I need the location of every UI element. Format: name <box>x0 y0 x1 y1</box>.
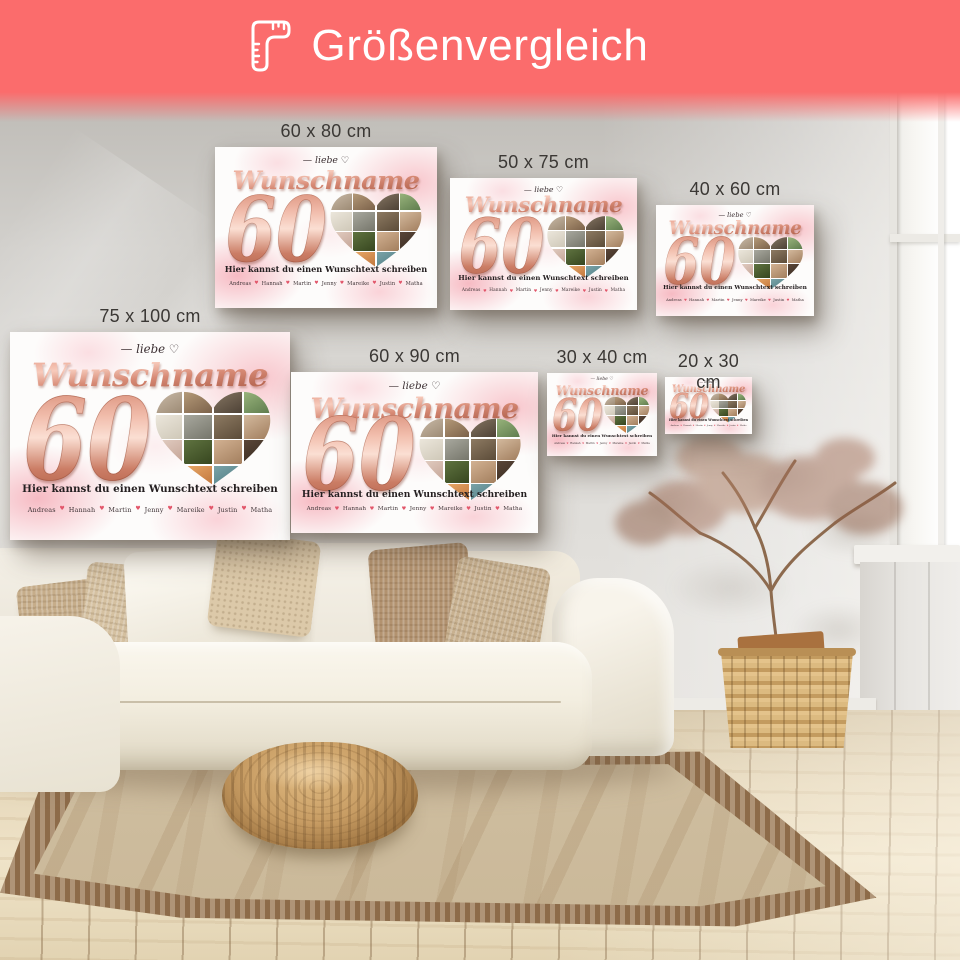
collage-photo <box>754 250 770 264</box>
poster-number-text: 60 <box>23 384 152 497</box>
poster-size-label: 20 x 30 cm <box>665 351 752 393</box>
poster-overline: — liebe ♡ <box>215 155 437 166</box>
wish-name: Hannah <box>689 298 704 302</box>
collage-photo <box>728 409 737 416</box>
poster-overline: — liebe ♡ <box>10 342 290 356</box>
collage-photo <box>719 409 728 416</box>
collage-photo <box>353 232 375 251</box>
header-banner: Größenvergleich <box>0 0 960 122</box>
poster-subtext: Hier kannst du einen Wunschtext schreibe… <box>215 264 437 274</box>
collage-photo <box>754 264 770 278</box>
heart-separator-icon: ♥ <box>583 288 587 293</box>
heart-separator-icon: ♥ <box>745 298 748 302</box>
wish-name: Andreas <box>28 506 56 514</box>
collage-photo <box>377 232 399 251</box>
poster-size-label: 50 x 75 cm <box>450 152 637 173</box>
page-title: Größenvergleich <box>311 21 648 71</box>
heart-separator-icon: ♥ <box>209 506 214 514</box>
collage-photo <box>418 439 443 460</box>
poster-number-text: 60 <box>552 394 603 438</box>
poster-artwork: — liebe ♡ Wunschname 60 Hier kannst du e… <box>291 372 538 533</box>
collage-photo <box>214 440 242 464</box>
heart-separator-icon: ♥ <box>596 442 598 445</box>
pillow-patterned <box>207 530 322 638</box>
poster-artwork: — liebe ♡ Wunschname 60 Hier kannst du e… <box>215 147 437 308</box>
collage-photo <box>184 415 212 439</box>
collage-photo <box>214 415 242 439</box>
wish-name: Andreas <box>666 298 682 302</box>
heart-separator-icon: ♥ <box>604 288 608 293</box>
wish-name: Andreas <box>307 506 332 512</box>
poster-number: 60 <box>553 395 603 437</box>
poster-subtext: Hier kannst du einen Wunschtext schreibe… <box>450 274 637 282</box>
wish-name: Mareike <box>717 425 726 427</box>
wish-name: Jenny <box>600 442 607 445</box>
collage-photo <box>586 231 605 247</box>
poster-number: 60 <box>24 388 150 492</box>
collage-photo <box>728 401 737 408</box>
collage-photo <box>606 249 625 265</box>
poster-names-row: Andreas♥Hannah♥Martin♥Jenny♥Mareike♥Just… <box>10 506 290 514</box>
collage-photo <box>445 461 470 482</box>
heart-photo-collage <box>546 214 625 281</box>
collage-photo <box>471 461 496 482</box>
heart-separator-icon: ♥ <box>135 506 140 514</box>
heart-separator-icon: ♥ <box>254 281 258 287</box>
heart-photo-collage <box>604 396 650 436</box>
heart-separator-icon: ♥ <box>609 442 611 445</box>
heart-separator-icon: ♥ <box>241 506 246 514</box>
poster-artwork: — liebe ♡ Wunschname 60 Hier kannst du e… <box>547 373 657 456</box>
wish-name: Justin <box>629 442 637 445</box>
heart-separator-icon: ♥ <box>402 506 407 512</box>
heart-separator-icon: ♥ <box>567 442 569 445</box>
collage-photo <box>566 231 585 247</box>
wish-name: Justin <box>589 288 602 293</box>
poster-number: 60 <box>664 235 735 291</box>
poster-number: 60 <box>226 190 326 271</box>
collage-photo <box>353 212 375 231</box>
poster-size-label: 60 x 90 cm <box>291 346 538 367</box>
collage-photo <box>615 416 626 425</box>
collage-photo <box>400 232 422 251</box>
wish-name: Martin <box>586 442 595 445</box>
collage-photo <box>604 416 615 425</box>
wish-name: Hannah <box>69 506 96 514</box>
collage-photo <box>788 250 804 264</box>
collage-photo <box>710 409 719 416</box>
wish-name: Matha <box>406 281 423 287</box>
heart-separator-icon: ♥ <box>625 442 627 445</box>
wish-name: Justin <box>380 281 396 287</box>
poster-subtext: Hier kannst du einen Wunschtext schreibe… <box>291 489 538 500</box>
collage-photo <box>244 440 272 464</box>
collage-photo <box>719 401 728 408</box>
wish-name: Matha <box>503 506 522 512</box>
poster-number-text: 60 <box>225 186 327 275</box>
heart-separator-icon: ♥ <box>372 281 376 287</box>
collage-photo <box>586 249 605 265</box>
heart-separator-icon: ♥ <box>510 288 514 293</box>
wish-name: Martin <box>712 298 725 302</box>
poster-names-row: Andreas♥Hannah♥Martin♥Jenny♥Mareike♥Just… <box>547 442 657 445</box>
heart-separator-icon: ♥ <box>787 298 790 302</box>
collage-photo <box>771 264 787 278</box>
wish-name: Jenny <box>410 506 427 512</box>
collage-photo <box>639 416 650 425</box>
wish-name: Hannah <box>343 506 366 512</box>
wish-name: Mareike <box>612 442 623 445</box>
wish-name: Hannah <box>262 281 283 287</box>
wish-name: Martin <box>696 425 703 427</box>
wish-name: Hannah <box>683 425 691 427</box>
wish-name: Matha <box>251 506 273 514</box>
wish-name: Andreas <box>462 288 481 293</box>
heart-separator-icon: ♥ <box>727 298 730 302</box>
heart-photo-collage <box>329 191 422 271</box>
heart-separator-icon: ♥ <box>466 506 471 512</box>
wish-name: Jenny <box>145 506 164 514</box>
heart-separator-icon: ♥ <box>680 425 682 427</box>
wish-name: Jenny <box>732 298 743 302</box>
poster-size-label: 60 x 80 cm <box>215 121 437 142</box>
collage-photo <box>418 461 443 482</box>
wish-name: Justin <box>773 298 784 302</box>
heart-separator-icon: ♥ <box>582 442 584 445</box>
collage-photo <box>615 406 626 415</box>
collage-photo <box>329 212 351 231</box>
collage-photo <box>627 416 638 425</box>
poster-number: 60 <box>669 392 708 421</box>
heart-separator-icon: ♥ <box>638 442 640 445</box>
poster-canvas: — liebe ♡ Wunschname 60 Hier kannst du e… <box>10 332 290 540</box>
collage-photo <box>737 264 753 278</box>
poster-names-row: Andreas♥Hannah♥Martin♥Jenny♥Mareike♥Just… <box>450 288 637 293</box>
poster-overline: — liebe ♡ <box>547 377 657 382</box>
wish-name: Jenny <box>707 425 713 427</box>
collage-photo <box>738 401 747 408</box>
collage-photo <box>400 212 422 231</box>
collage-photo <box>244 415 272 439</box>
wish-name: Hannah <box>489 288 507 293</box>
poster-canvas: — liebe ♡ Wunschname 60 Hier kannst du e… <box>215 147 437 308</box>
heart-separator-icon: ♥ <box>398 281 402 287</box>
collage-photo <box>471 439 496 460</box>
poster-number: 60 <box>303 415 414 496</box>
collage-photo <box>377 212 399 231</box>
poster-names-row: Andreas♥Hannah♥Martin♥Jenny♥Mareike♥Just… <box>665 425 752 427</box>
poster-canvas: — liebe ♡ Wunschname 60 Hier kannst du e… <box>656 205 814 316</box>
collage-photo <box>546 231 565 247</box>
heart-separator-icon: ♥ <box>704 425 706 427</box>
poster-subtext: Hier kannst du einen Wunschtext schreibe… <box>547 433 657 438</box>
collage-photo <box>627 406 638 415</box>
poster-artwork: — liebe ♡ Wunschname 60 Hier kannst du e… <box>450 178 637 310</box>
header-content: Größenvergleich <box>0 0 930 92</box>
collage-photo <box>154 415 182 439</box>
poster-number: 60 <box>459 214 543 280</box>
collage-photo <box>546 249 565 265</box>
poster-size-label: 75 x 100 cm <box>10 306 290 327</box>
heart-separator-icon: ♥ <box>706 298 709 302</box>
heart-separator-icon: ♥ <box>495 506 500 512</box>
collage-photo <box>329 232 351 251</box>
ruler-icon <box>251 20 293 72</box>
wish-name: Justin <box>730 425 736 427</box>
wish-name: Jenny <box>540 288 553 293</box>
wish-name: Andreas <box>229 281 251 287</box>
heart-separator-icon: ♥ <box>693 425 695 427</box>
heart-separator-icon: ♥ <box>727 425 729 427</box>
poster-names-row: Andreas♥Hannah♥Martin♥Jenny♥Mareike♥Just… <box>291 506 538 512</box>
wish-name: Martin <box>108 506 131 514</box>
wish-name: Matha <box>641 442 649 445</box>
wish-name: Justin <box>218 506 238 514</box>
collage-photo <box>710 401 719 408</box>
collage-photo <box>566 249 585 265</box>
heart-separator-icon: ♥ <box>534 288 538 293</box>
wish-name: Martin <box>293 281 311 287</box>
wish-name: Martin <box>378 506 398 512</box>
wish-name: Jenny <box>322 281 337 287</box>
heart-separator-icon: ♥ <box>483 288 487 293</box>
wish-name: Andreas <box>671 425 680 427</box>
collage-photo <box>604 406 615 415</box>
heart-separator-icon: ♥ <box>340 281 344 287</box>
sofa-armrest-left <box>0 616 120 792</box>
collage-photo <box>497 439 522 460</box>
wish-name: Matha <box>740 425 747 427</box>
collage-photo <box>154 440 182 464</box>
poster-size-label: 40 x 60 cm <box>656 179 814 200</box>
poster-artwork: — liebe ♡ Wunschname 60 Hier kannst du e… <box>656 205 814 316</box>
collage-photo <box>738 409 747 416</box>
heart-separator-icon: ♥ <box>167 506 172 514</box>
poster-artwork: — liebe ♡ Wunschname 60 Hier kannst du e… <box>10 332 290 540</box>
wish-name: Mareike <box>438 506 463 512</box>
heart-separator-icon: ♥ <box>286 281 290 287</box>
collage-photo <box>639 406 650 415</box>
wish-name: Matha <box>611 288 625 293</box>
heart-separator-icon: ♥ <box>737 425 739 427</box>
heart-separator-icon: ♥ <box>555 288 559 293</box>
heart-separator-icon: ♥ <box>314 281 318 287</box>
heart-photo-collage <box>737 236 803 293</box>
collage-photo <box>737 250 753 264</box>
wish-name: Hannah <box>570 442 580 445</box>
wish-name: Mareike <box>561 288 580 293</box>
wish-name: Martin <box>516 288 531 293</box>
wish-name: Matha <box>792 298 804 302</box>
poster-names-row: Andreas♥Hannah♥Martin♥Jenny♥Mareike♥Just… <box>656 298 814 302</box>
heart-separator-icon: ♥ <box>684 298 687 302</box>
poster-subtext: Hier kannst du einen Wunschtext schreibe… <box>656 285 814 291</box>
heart-separator-icon: ♥ <box>714 425 716 427</box>
heart-separator-icon: ♥ <box>768 298 771 302</box>
wish-name: Justin <box>474 506 491 512</box>
poster-canvas: — liebe ♡ Wunschname 60 Hier kannst du e… <box>547 373 657 456</box>
wish-name: Mareike <box>177 506 205 514</box>
collage-photo <box>445 439 470 460</box>
poster-names-row: Andreas♥Hannah♥Martin♥Jenny♥Mareike♥Just… <box>215 281 437 287</box>
wish-name: Mareike <box>750 298 766 302</box>
collage-photo <box>788 264 804 278</box>
collage-photo <box>606 231 625 247</box>
heart-separator-icon: ♥ <box>335 506 340 512</box>
rattan-pouf <box>222 742 418 849</box>
poster-subtext: Hier kannst du einen Wunschtext schreibe… <box>665 418 752 422</box>
poster-canvas: — liebe ♡ Wunschname 60 Hier kannst du e… <box>450 178 637 310</box>
wish-name: Mareike <box>347 281 369 287</box>
collage-photo <box>497 461 522 482</box>
heart-separator-icon: ♥ <box>430 506 435 512</box>
heart-photo-collage <box>154 389 272 490</box>
poster-canvas: — liebe ♡ Wunschname 60 Hier kannst du e… <box>291 372 538 533</box>
heart-separator-icon: ♥ <box>370 506 375 512</box>
collage-photo <box>184 440 212 464</box>
poster-subtext: Hier kannst du einen Wunschtext schreibe… <box>10 483 290 495</box>
wish-name: Andreas <box>554 442 565 445</box>
size-comparison-scene: Größenvergleich — liebe ♡ Wunschname 60 … <box>0 0 960 960</box>
poster-size-label: 30 x 40 cm <box>547 347 657 368</box>
heart-separator-icon: ♥ <box>60 506 65 514</box>
heart-separator-icon: ♥ <box>99 506 104 514</box>
collage-photo <box>771 250 787 264</box>
